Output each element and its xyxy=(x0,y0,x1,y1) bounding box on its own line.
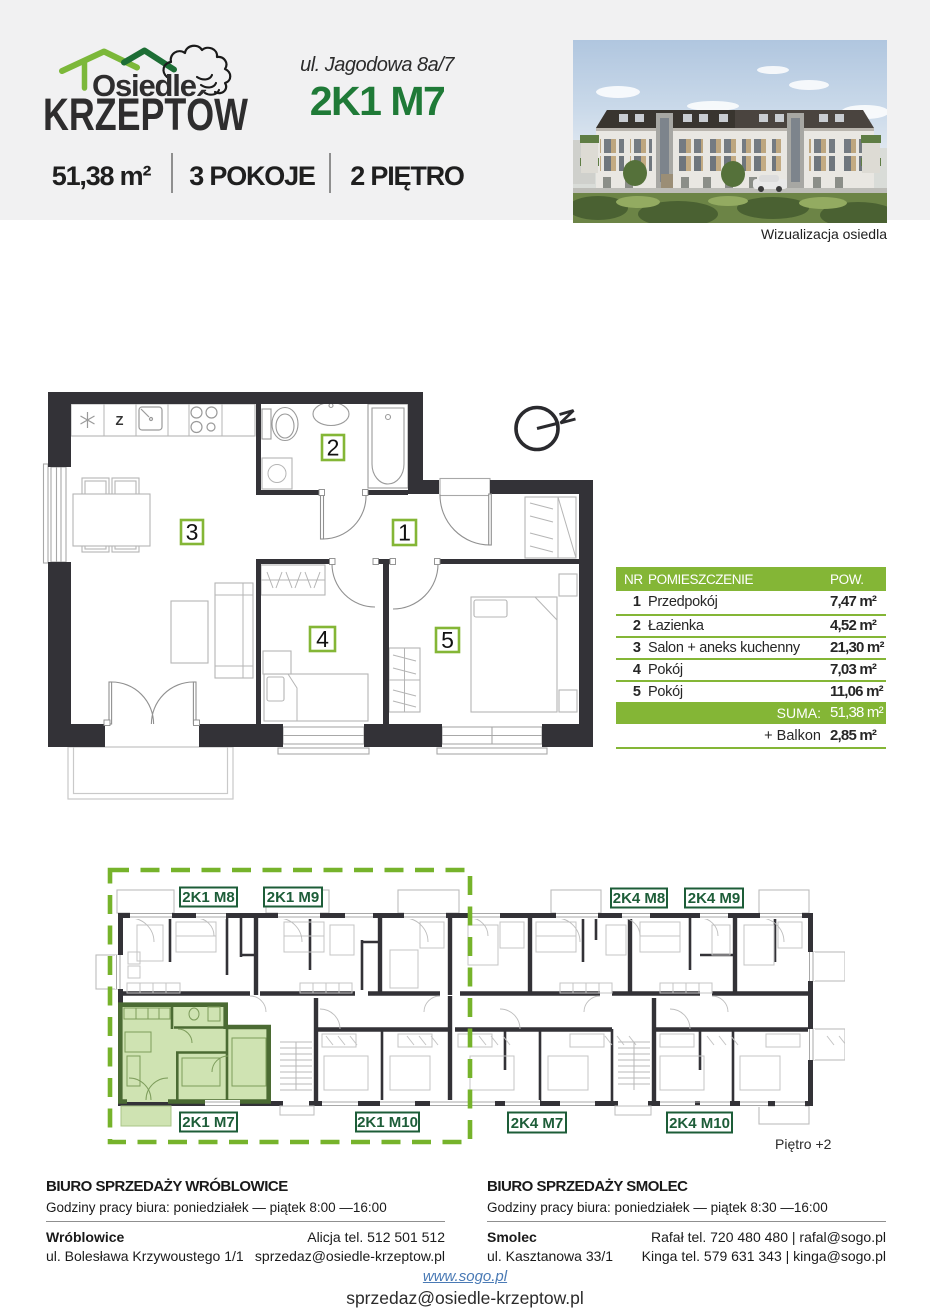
svg-text:2: 2 xyxy=(327,435,340,461)
svg-text:5: 5 xyxy=(441,627,454,653)
svg-text:4: 4 xyxy=(316,626,329,652)
svg-text:2K1 M8: 2K1 M8 xyxy=(182,889,235,906)
svg-text:Z: Z xyxy=(116,413,124,428)
svg-text:2K1 M9: 2K1 M9 xyxy=(267,889,320,906)
svg-text:2K4 M8: 2K4 M8 xyxy=(613,890,666,907)
svg-text:2K1 M7: 2K1 M7 xyxy=(182,1114,235,1131)
svg-text:2K4 M10: 2K4 M10 xyxy=(669,1115,730,1132)
svg-text:2K4 M9: 2K4 M9 xyxy=(688,890,741,907)
svg-text:3: 3 xyxy=(186,519,199,545)
svg-text:2K4 M7: 2K4 M7 xyxy=(511,1115,564,1132)
svg-text:KRZEPTÓW: KRZEPTÓW xyxy=(43,89,248,135)
svg-text:2K1 M10: 2K1 M10 xyxy=(357,1114,418,1131)
svg-text:1: 1 xyxy=(398,520,411,546)
